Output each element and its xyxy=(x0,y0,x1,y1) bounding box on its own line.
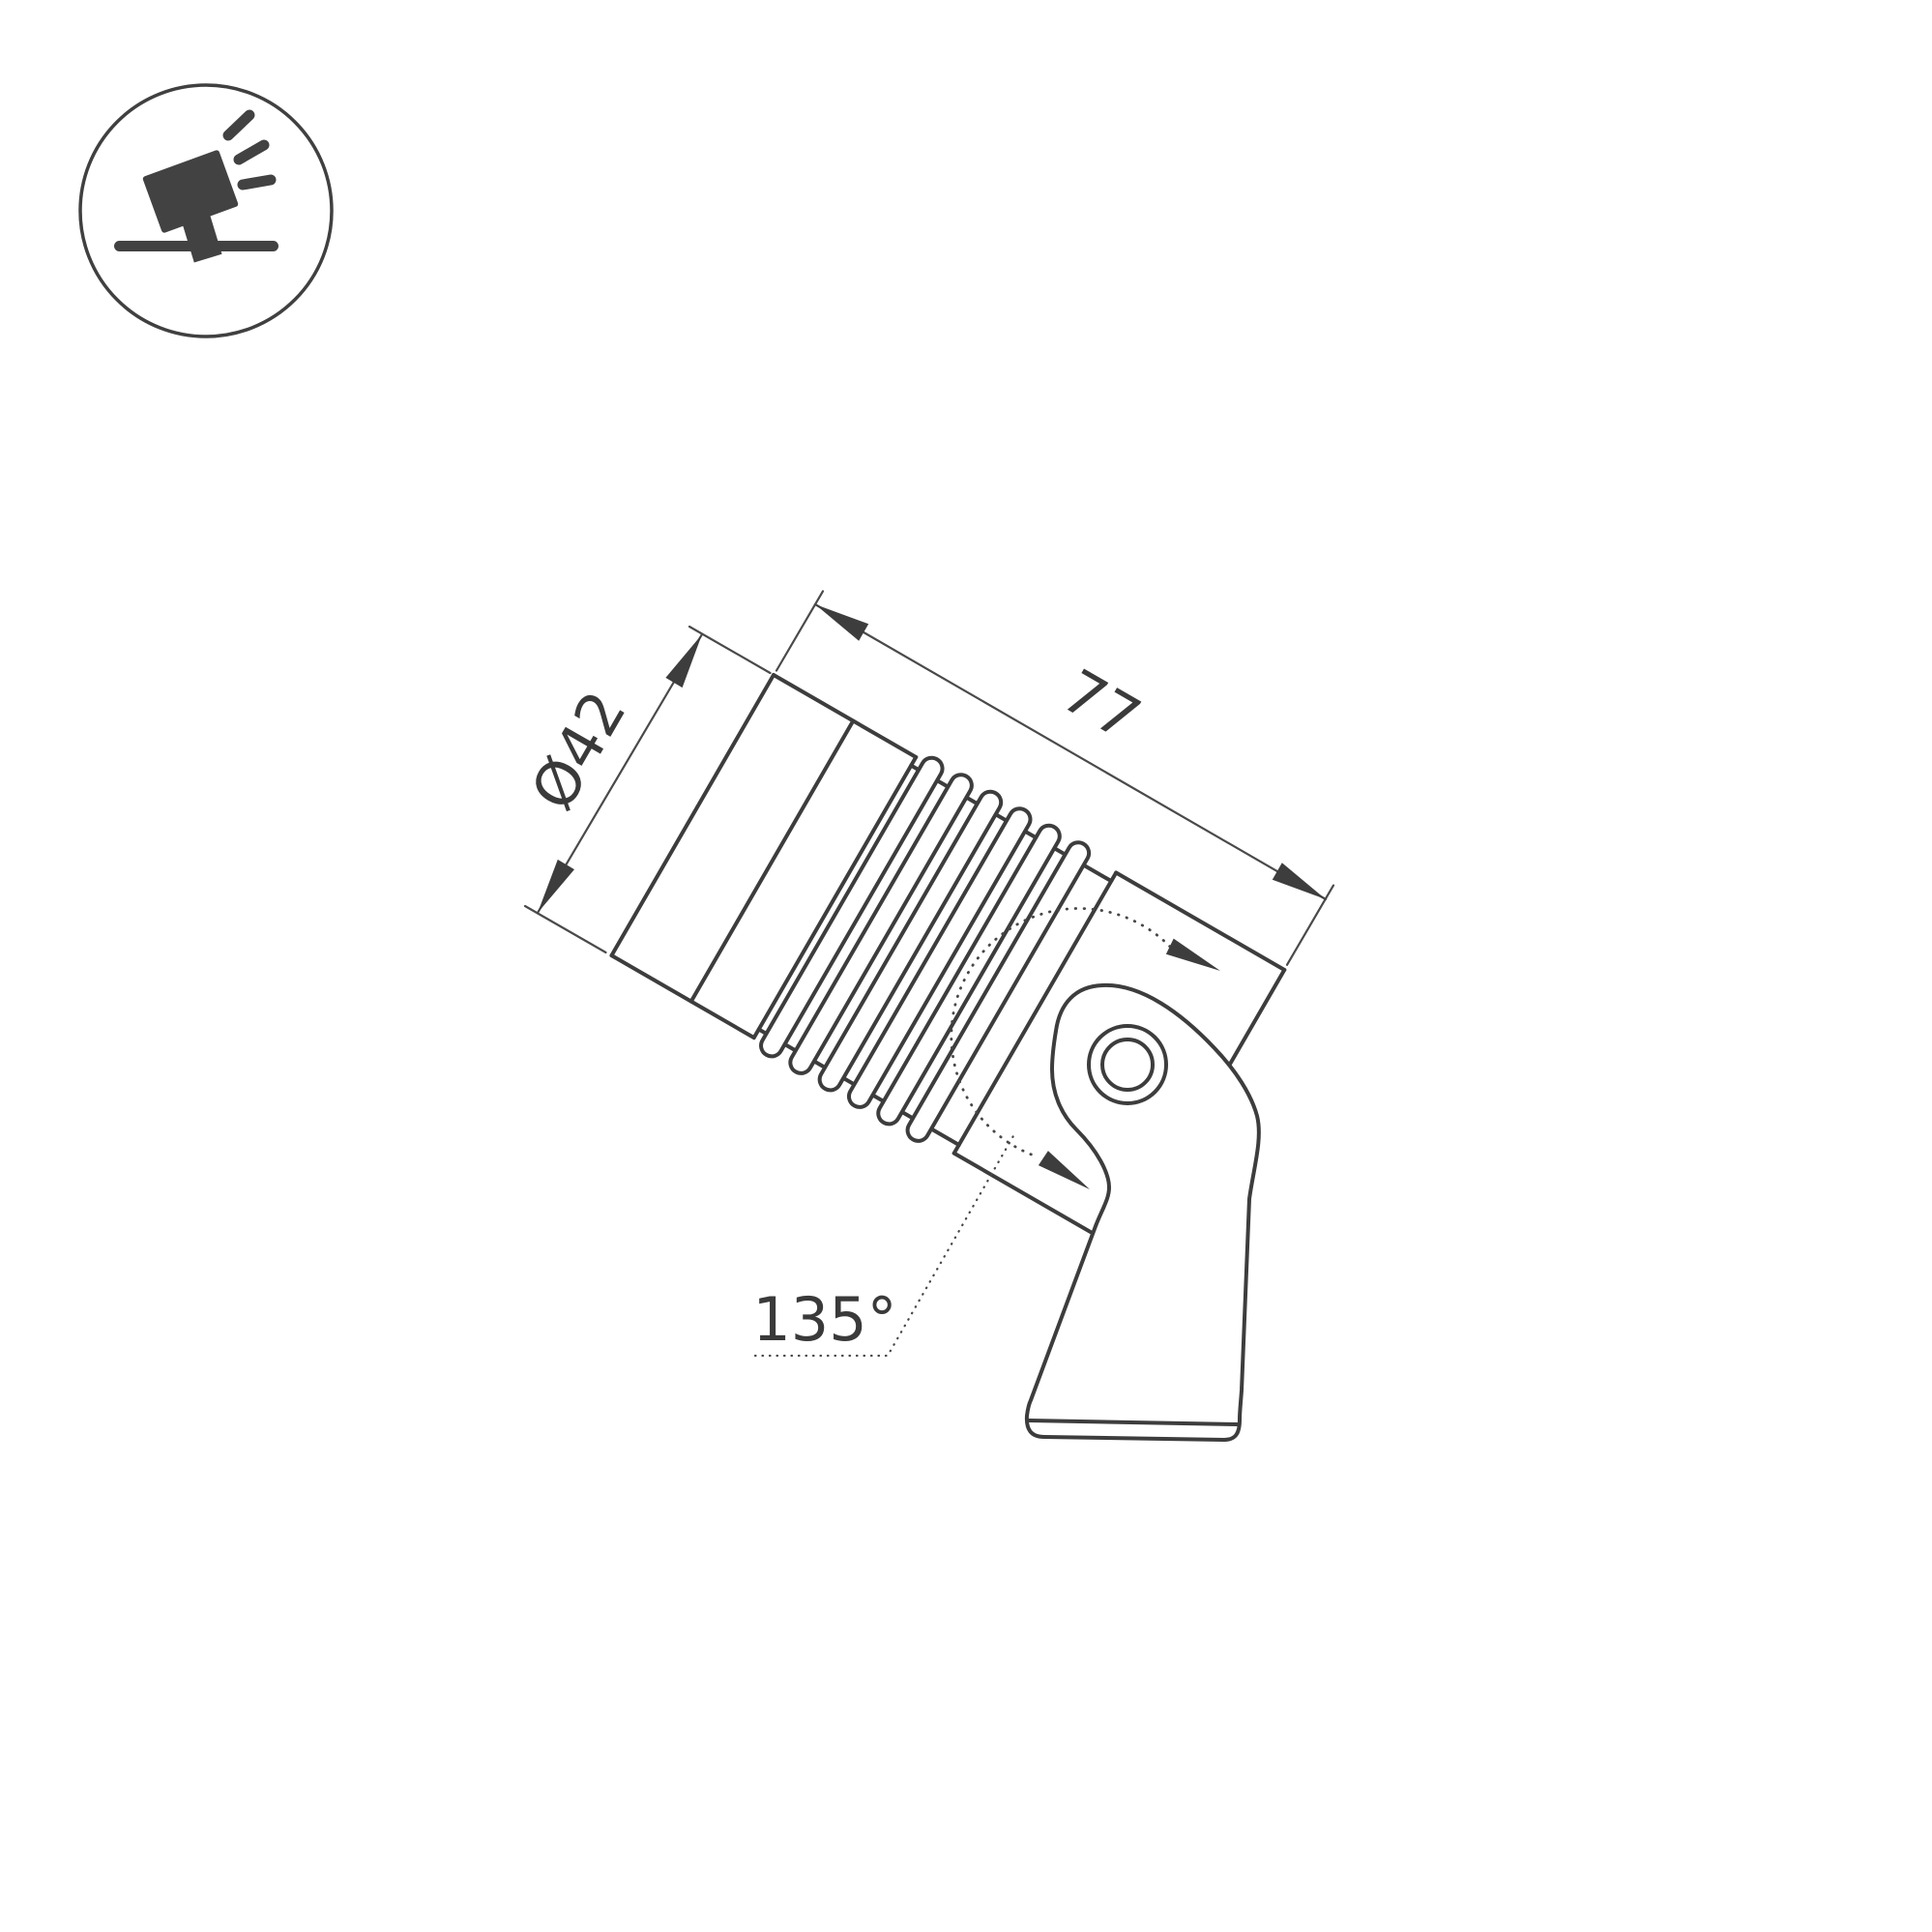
rotation-arc-arrow-top xyxy=(1166,939,1220,971)
diameter-label: Ø42 xyxy=(517,680,640,822)
icon-spotlight-head xyxy=(142,150,239,234)
length-extension-line-left xyxy=(776,591,823,670)
icon-ground-bar xyxy=(114,241,278,251)
length-label: 77 xyxy=(1050,656,1152,755)
length-extension-line-right xyxy=(1287,886,1333,965)
rotation-arc-arrow-bottom xyxy=(1039,1151,1090,1189)
spotlight-icon xyxy=(80,85,332,337)
diameter-arrow-bottom xyxy=(538,860,574,913)
angle-label: 135° xyxy=(752,1284,896,1355)
cooling-fins xyxy=(757,754,1093,1145)
icon-light-rays xyxy=(228,115,271,185)
length-arrow-left xyxy=(815,604,868,641)
technical-drawing: Ø42 77 135° xyxy=(517,591,1333,1440)
diameter-arrow-top xyxy=(665,634,702,688)
pivot-inner-circle xyxy=(1102,1039,1153,1090)
drawing-canvas: Ø42 77 135° xyxy=(0,0,1932,1932)
length-arrow-right xyxy=(1273,863,1326,899)
